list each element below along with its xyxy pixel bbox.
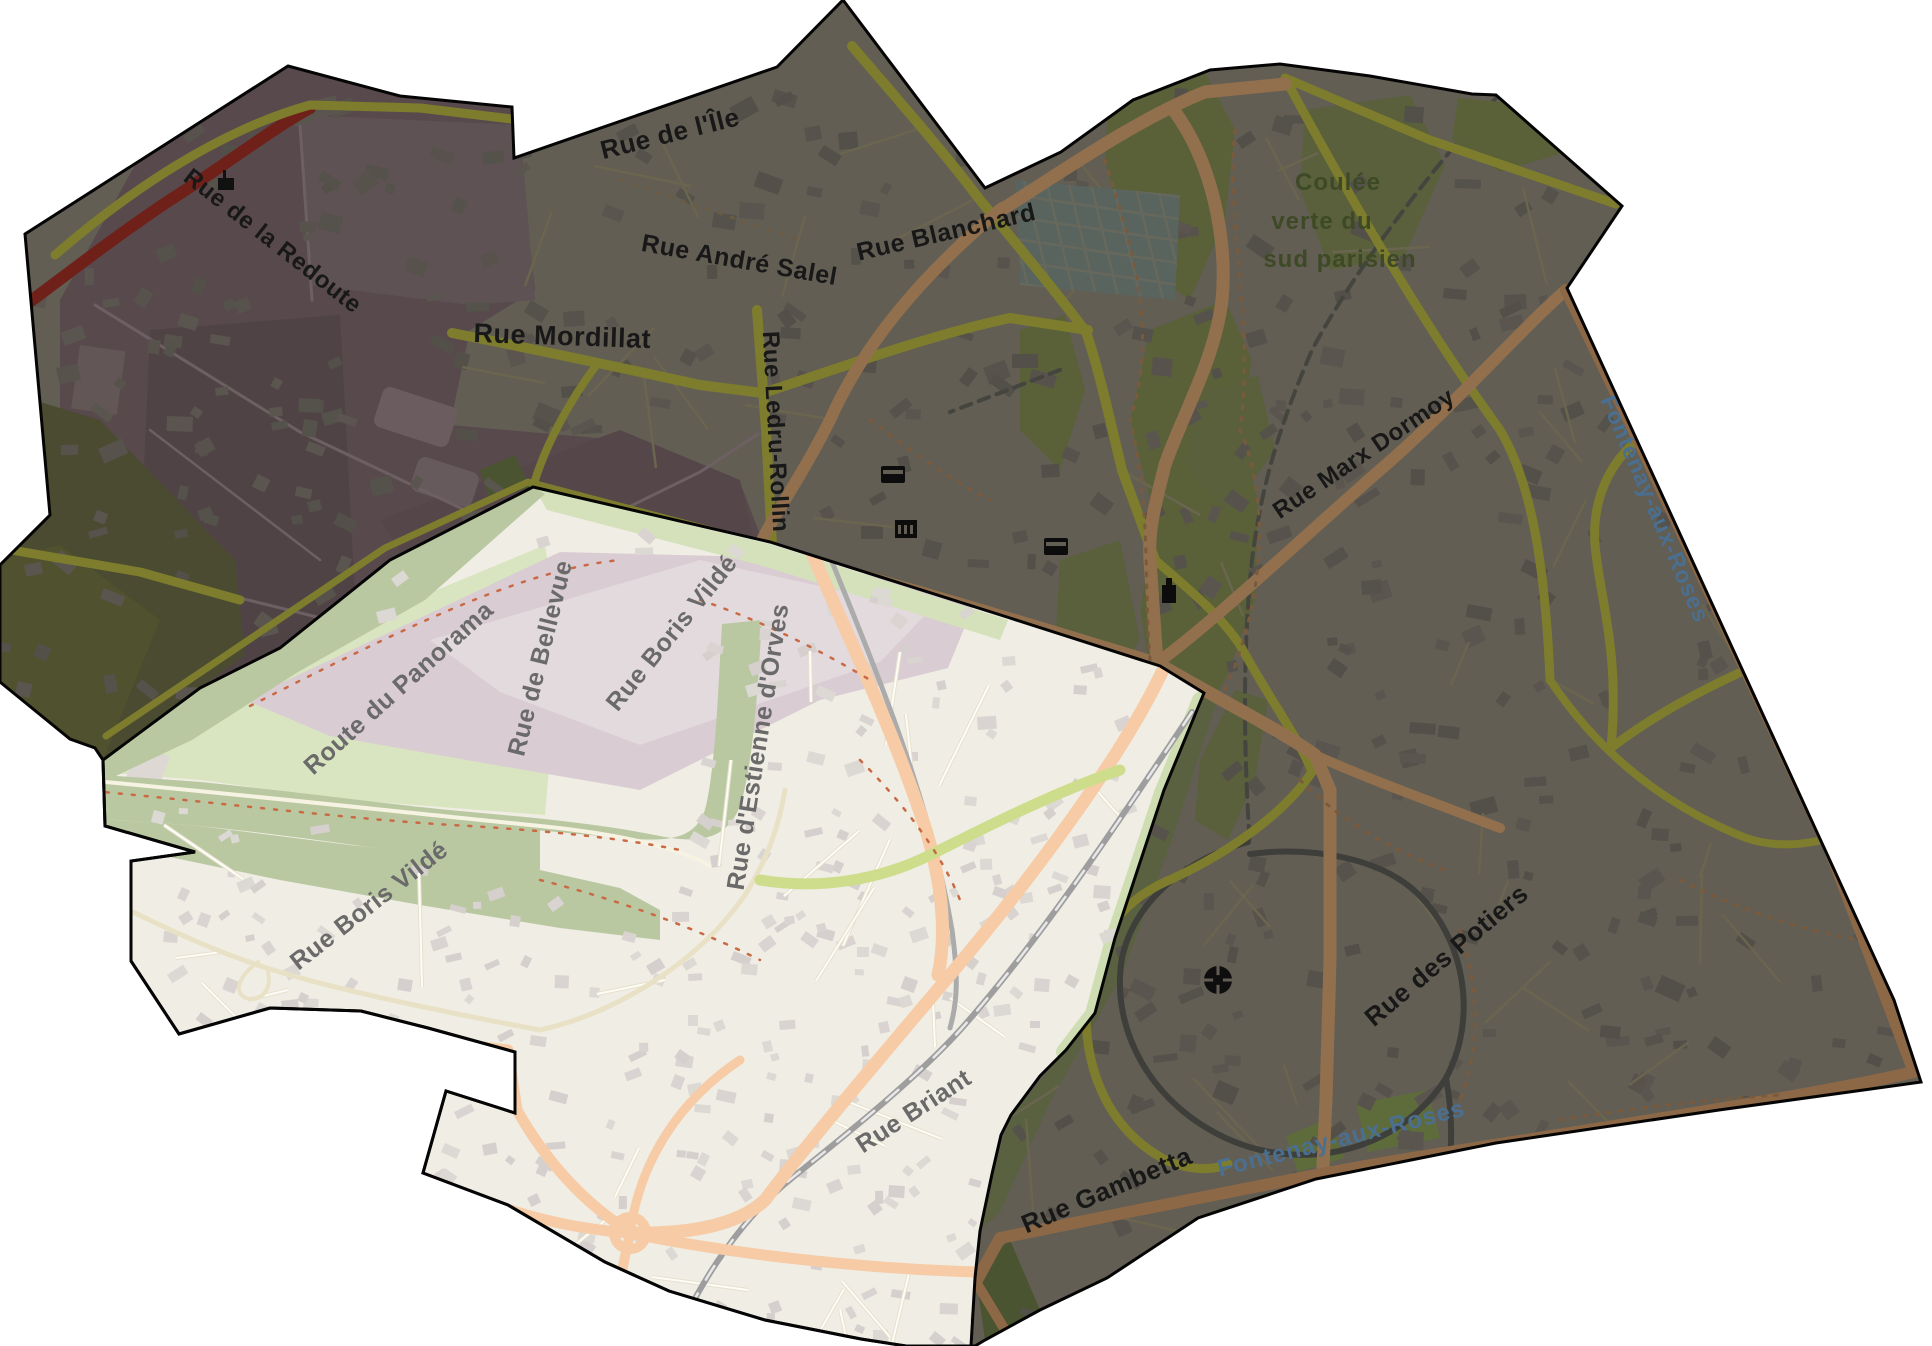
svg-text:Rue Mordillat: Rue Mordillat [473,318,651,354]
svg-text:verte du: verte du [1271,208,1372,235]
svg-text:sud parisien: sud parisien [1263,246,1416,273]
svg-text:Coulée: Coulée [1295,169,1381,196]
